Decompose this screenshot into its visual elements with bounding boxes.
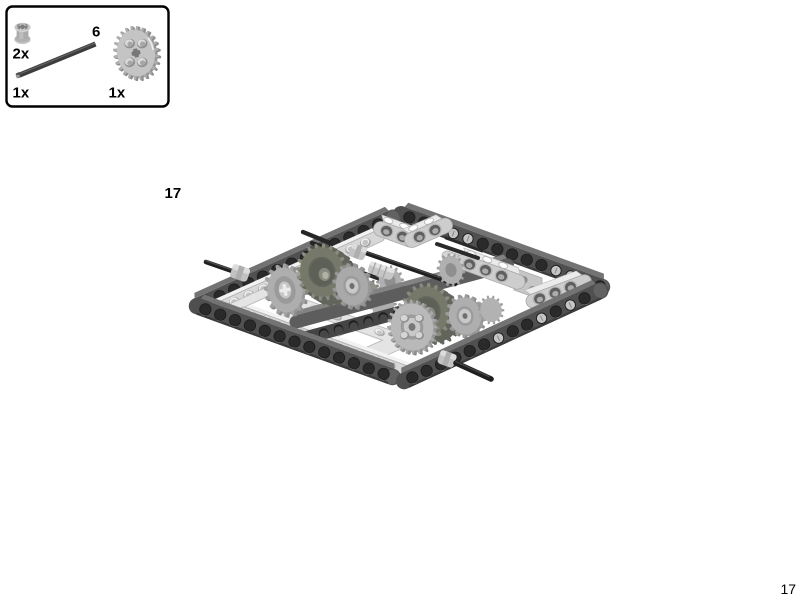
svg-text:1x: 1x <box>13 85 30 102</box>
svg-text:6: 6 <box>92 24 100 41</box>
svg-text:2x: 2x <box>13 46 30 63</box>
svg-text:1x: 1x <box>109 85 126 102</box>
svg-text:17: 17 <box>781 581 797 597</box>
svg-text:17: 17 <box>165 185 182 202</box>
